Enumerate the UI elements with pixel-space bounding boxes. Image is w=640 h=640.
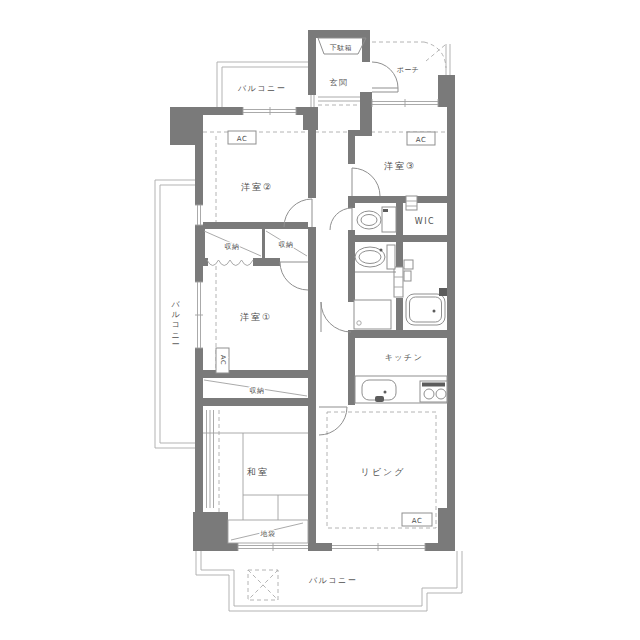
window-top-room3 — [372, 99, 438, 107]
window-west-room2 — [195, 205, 203, 225]
toilet-icon — [357, 207, 396, 232]
door-washroom — [321, 302, 351, 332]
ac-label-living: AC — [412, 517, 423, 525]
ac-label-room2: AC — [237, 135, 248, 143]
storage3-label: 収納 — [250, 387, 265, 395]
entry-door — [372, 62, 398, 92]
washbasin-icon — [355, 245, 396, 272]
closet-folding-door — [207, 260, 253, 266]
shoe-cabinet-label: 下駄箱 — [330, 44, 353, 52]
kitchen-counter — [355, 376, 447, 403]
porch-label: ポーチ — [397, 66, 420, 74]
storage1-label: 収納 — [225, 243, 240, 251]
wic-bifold-door — [406, 196, 417, 210]
door-room1 — [280, 262, 308, 290]
living-label: リビング — [361, 467, 406, 477]
floor-cabinet-label: 地袋 — [260, 530, 276, 538]
balcony-bottom-label: バルコニー — [308, 576, 357, 585]
stove-icon — [420, 381, 447, 402]
western-room2-label: 洋室② — [241, 182, 273, 192]
floor-plan-page: バルコニー バルコニー バルコニー 下駄箱 玄関 ポーチ 洋室② 洋室③ 洋室①… — [0, 0, 640, 640]
kitchen-label: キッチン — [385, 353, 424, 362]
washing-machine-icon — [354, 300, 391, 329]
door-living — [319, 407, 347, 435]
storage2-label: 収納 — [279, 241, 294, 249]
japanese-room-label: 和室 — [247, 467, 269, 477]
wic-label: WIC — [415, 217, 435, 226]
balcony-left-label: バルコニー — [171, 295, 181, 345]
window-top-room2 — [243, 107, 296, 115]
door-room3 — [352, 168, 380, 196]
floor-plan-canvas: バルコニー バルコニー バルコニー 下駄箱 玄関 ポーチ 洋室② 洋室③ 洋室①… — [0, 0, 640, 640]
entrance-label: 玄関 — [330, 78, 349, 87]
window-bottom-living — [332, 543, 425, 551]
window-bottom-japanese — [238, 543, 308, 551]
window-west-room1 — [195, 282, 203, 348]
balcony-top-label: バルコニー — [237, 84, 286, 93]
western-room1-label: 洋室① — [240, 312, 272, 322]
western-room3-label: 洋室③ — [384, 161, 416, 171]
window-entrance-side — [311, 95, 314, 107]
evacuation-hatch-icon — [248, 570, 278, 600]
door-toilet — [330, 208, 352, 230]
faucet-icon — [375, 396, 384, 402]
walls — [170, 30, 455, 551]
ac-label-room1: AC — [219, 355, 227, 365]
ac-label-room3: AC — [416, 136, 427, 144]
bathtub-icon — [404, 260, 447, 325]
